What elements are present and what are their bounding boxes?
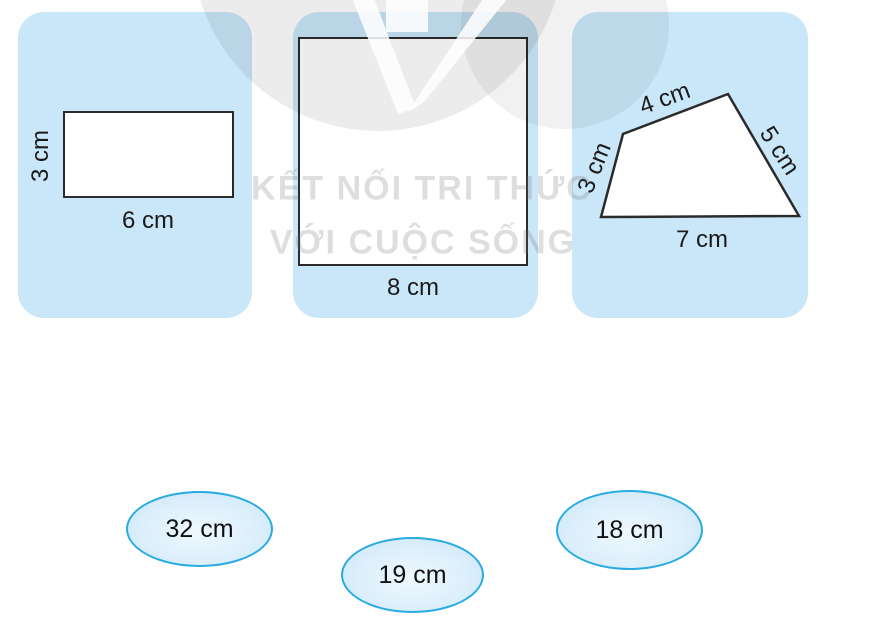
answer-option-18cm[interactable]: 18 cm — [556, 490, 703, 570]
answer-option-label: 18 cm — [595, 516, 663, 545]
rectangle-width-label: 6 cm — [122, 209, 174, 233]
answer-option-32cm[interactable]: 32 cm — [126, 491, 273, 567]
answer-option-label: 32 cm — [165, 515, 233, 544]
answer-option-label: 19 cm — [378, 561, 446, 590]
square-side-label: 8 cm — [387, 276, 439, 300]
rectangle-height-label: 3 cm — [29, 130, 53, 182]
quad-bottom-side-label: 7 cm — [676, 228, 728, 252]
rectangle-shape — [63, 111, 234, 198]
answer-option-19cm[interactable]: 19 cm — [341, 537, 484, 613]
perimeter-worksheet: 3 cm 6 cm 8 cm 3 cm 4 cm 5 cm 7 cm KẾT N… — [0, 0, 873, 626]
square-shape — [298, 37, 528, 266]
